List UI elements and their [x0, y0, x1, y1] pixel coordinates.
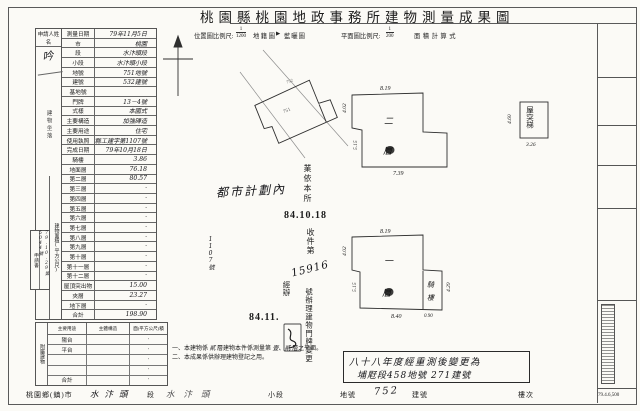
row-value: ·: [95, 252, 156, 261]
right-column-divider: [597, 23, 598, 403]
table-row: 測量日期 79年11月5日: [62, 29, 156, 38]
row-value: ·: [95, 213, 156, 222]
table-row: 平台 ·: [48, 345, 167, 355]
bottom-note-2: 二、本成果係供辦理建物登記之用。: [172, 354, 352, 363]
table-row: 第十層 ·: [62, 251, 156, 261]
row-label: 完成日期: [62, 145, 95, 154]
table-row: 屋頂突出物 15.00: [62, 280, 156, 290]
row-value: 80.57: [95, 175, 156, 184]
resurvey-note-box: 八十八年度經重測後變更為 埔屘段458地號 271建號: [343, 351, 530, 383]
row-value: 桃縣工建字第1107號: [95, 136, 156, 145]
row-label: 第八層: [62, 233, 95, 242]
row-label: 夾層: [62, 291, 95, 300]
row-label: 第十一層: [62, 262, 95, 271]
registration-stamp-block: [601, 304, 615, 384]
stamp-received-by: 業依本所: [302, 164, 313, 204]
bottom-note-1: 一、本建物係 貳 層建物本件係測量第 壹、貳 層之平面。: [172, 344, 352, 354]
table-row: 地號 751地號: [62, 67, 156, 77]
row-value: ·: [95, 233, 156, 242]
receipt-date-no: 79.10.29第5044號: [40, 231, 49, 289]
table-row: 完成日期 79年10月18日: [62, 144, 156, 154]
row-label: 屋頂突出物: [62, 281, 95, 290]
table-row: 第九層 ·: [62, 241, 156, 251]
area-group-label: 建物面積(平方公尺): [49, 176, 62, 319]
table-row: 小段 水汴頭小段: [62, 57, 156, 67]
cadastral-map-label: 地籍圖: [253, 31, 276, 40]
right-divider: [597, 208, 636, 209]
row-label: 第五層: [62, 204, 95, 213]
table-row: 段 水汴頭段: [62, 47, 156, 57]
table-row: 合計 198.90: [62, 309, 156, 319]
blueprint-label: 藍曬圖: [284, 31, 306, 40]
row-label: 地面層: [62, 165, 95, 174]
annex-area: ·: [130, 376, 167, 385]
plan-scale-label: 平面圖比例尺:: [341, 31, 381, 40]
row-label: 式樣: [62, 107, 95, 116]
strip-subsection-label: 小段: [268, 390, 284, 400]
table-row: 地下層 ·: [62, 300, 156, 310]
row-value: ·: [95, 301, 156, 310]
location-scale-label: 位置圖比例尺:: [194, 31, 234, 40]
row-value: ·: [95, 184, 156, 193]
strip-parcel-value: 752: [374, 385, 400, 398]
row-value: 本國式: [95, 107, 156, 116]
stamp-date-1: 84.10.18: [284, 210, 327, 221]
annex-area: ·: [130, 355, 167, 364]
annex-use: [48, 355, 87, 364]
location-scale-fraction: 1 1200: [236, 27, 246, 39]
row-value: ·: [95, 242, 156, 251]
row-value: 79年10月18日: [95, 145, 156, 154]
row-value: 住宅: [95, 126, 156, 135]
right-divider: [597, 388, 636, 389]
bottom-notes: 一、本建物係 貳 層建物本件係測量第 壹、貳 層之平面。 二、本成果係供辦理建物…: [172, 344, 352, 363]
table-row: 主要用途 住宅: [62, 125, 156, 135]
annex-structure: [87, 335, 130, 344]
row-value: 15.00: [95, 281, 156, 290]
strip-section-value: 水汴頭: [90, 388, 134, 400]
table-row: 第四層 ·: [62, 193, 156, 203]
row-label: 第四層: [62, 194, 95, 203]
row-label: 騎樓: [62, 155, 95, 164]
row-value: ·: [95, 204, 156, 213]
row-value: 198.90: [95, 310, 156, 319]
row-label: 第十二層: [62, 272, 95, 281]
right-divider: [597, 77, 636, 78]
scanned-survey-document: 桃園縣桃園地政事務所建物測量成果圖 位置圖比例尺: 1 1200 地籍圖 ▶ 藍…: [0, 0, 640, 411]
resurvey-line-1: 八十八年度經重測後變更為: [349, 354, 529, 368]
row-value: 79年11月5日: [95, 29, 156, 38]
strip-parcel-label: 地號: [340, 390, 356, 400]
annex-header-row: 主要用途 主體構造 面(平方公尺)積: [48, 323, 167, 335]
table-row: 合計 ·: [48, 376, 167, 385]
table-row: 式樣 本國式: [62, 106, 156, 116]
table-row: 第六層 ·: [62, 212, 156, 222]
row-value: 751地號: [95, 68, 156, 77]
strip-section-label: 段: [147, 390, 155, 400]
row-value: [95, 87, 156, 96]
row-value: 水汴頭段: [95, 48, 156, 57]
annex-use: 平台: [48, 345, 87, 354]
strip-subsection-value: 水汴頭: [166, 388, 219, 400]
stamp-date-2: 84.11.: [249, 312, 279, 323]
check-marker-icon: ▶: [276, 31, 280, 37]
row-label: 地下層: [62, 301, 95, 310]
row-label: 主要用途: [62, 126, 95, 135]
table-row: 基地號: [62, 86, 156, 96]
table-row: 第二層 80.57: [62, 174, 156, 184]
table-row: 門牌 13－4號: [62, 96, 156, 106]
row-label: 使用執照: [62, 136, 95, 145]
form-print-code: 79.4.6,500: [598, 393, 619, 398]
annex-rows: 陽台 · 平台 · · · 合計: [48, 335, 167, 385]
annex-area: ·: [130, 345, 167, 354]
row-label: 第二層: [62, 175, 95, 184]
annex-area: ·: [130, 335, 167, 344]
page-title: 桃園縣桃園地政事務所建物測量成果圖: [200, 6, 515, 26]
row-value: 加強磚造: [95, 116, 156, 125]
right-divider: [597, 125, 636, 126]
row-value: 76.18: [95, 165, 156, 174]
row-value: 3.86: [95, 155, 156, 164]
receipt-strip: 申請書 79.10.29第5044號: [30, 230, 50, 290]
annex-structure: [87, 366, 130, 375]
table-row: ·: [48, 366, 167, 376]
applicant-label: 申請人姓名: [36, 29, 61, 47]
annex-structure: [87, 376, 130, 385]
row-label: 第六層: [62, 213, 95, 222]
table-row: 陽台 ·: [48, 335, 167, 345]
annex-use: 陽台: [48, 335, 87, 344]
row-value: ·: [95, 194, 156, 203]
annex-use: 合計: [48, 376, 87, 385]
right-divider: [597, 165, 636, 166]
right-divider: [597, 300, 636, 301]
row-value: 13－4號: [95, 97, 156, 106]
annex-use: [48, 366, 87, 375]
table-row: 第十二層 ·: [62, 271, 156, 281]
plan-scale-fraction: 1 200: [386, 27, 394, 39]
row-value: 水汴頭小段: [95, 58, 156, 67]
resurvey-line-2: 埔屘段458地號 271建號: [349, 368, 529, 381]
row-value: 23.27: [95, 291, 156, 300]
row-label: 第七層: [62, 223, 95, 232]
row-label: 地號: [62, 68, 95, 77]
survey-form-table: 測量日期 79年11月5日 市 桃園 段 水汴頭段 小段 水汴頭小段 地號 75…: [62, 28, 157, 320]
strip-county: 桃園鄉(鎮)市: [26, 390, 73, 400]
row-value: ·: [95, 272, 156, 281]
table-row: 主要構造 加強磚造: [62, 115, 156, 125]
row-label: 建號: [62, 78, 95, 87]
row-label: 基地號: [62, 87, 95, 96]
table-row: 第七層 ·: [62, 222, 156, 232]
table-row: 騎樓 3.86: [62, 154, 156, 164]
table-row: 市 桃園: [62, 38, 156, 48]
table-row: 第八層 ·: [62, 232, 156, 242]
annex-structure: [87, 345, 130, 354]
strip-building-label: 建號: [412, 390, 428, 400]
row-label: 小段: [62, 58, 95, 67]
area-calc-label: 面積計算式: [414, 31, 458, 40]
annex-header-structure: 主體構造: [87, 323, 130, 334]
row-value: 532建號: [95, 78, 156, 87]
table-row: 第五層 ·: [62, 203, 156, 213]
stamp-receipt-label: 收件第: [305, 228, 316, 255]
annex-header-use: 主要用途: [48, 323, 87, 334]
applicant-signature: 吟: [34, 46, 62, 75]
vertical-notes: [191, 74, 199, 270]
table-row: 夾層 23.27: [62, 290, 156, 300]
vertical-note-fill: 1107號: [206, 236, 215, 270]
row-label: 市: [62, 39, 95, 48]
row-value: ·: [95, 223, 156, 232]
annex-header-area: 面(平方公尺)積: [130, 323, 167, 334]
row-label: 第十層: [62, 252, 95, 261]
row-label: 段: [62, 48, 95, 57]
row-label: 合計: [62, 310, 95, 319]
row-label: 第九層: [62, 242, 95, 251]
table-row: ·: [48, 355, 167, 365]
row-label: 門牌: [62, 97, 95, 106]
stamp-handler-label: 經辦: [281, 281, 292, 296]
table-row: 第十一層 ·: [62, 261, 156, 271]
row-value: 桃園: [95, 39, 156, 48]
strip-floor-label: 樓次: [518, 390, 534, 400]
row-label: 第三層: [62, 184, 95, 193]
table-row: 地面層 76.18: [62, 164, 156, 174]
table-row: 第三層 ·: [62, 183, 156, 193]
row-label: 測量日期: [62, 29, 95, 38]
table-row: 建號 532建號: [62, 77, 156, 87]
row-label: 主要構造: [62, 116, 95, 125]
annex-structure: [87, 355, 130, 364]
table-row: 使用執照 桃縣工建字第1107號: [62, 135, 156, 145]
row-value: ·: [95, 262, 156, 271]
annex-group-label: 附屬建物: [36, 323, 48, 385]
annex-area: ·: [130, 366, 167, 375]
location-group-label: 建物坐落: [36, 77, 61, 173]
annex-building-table: 附屬建物 主要用途 主體構造 面(平方公尺)積 陽台 · 平台 ·: [35, 322, 168, 386]
